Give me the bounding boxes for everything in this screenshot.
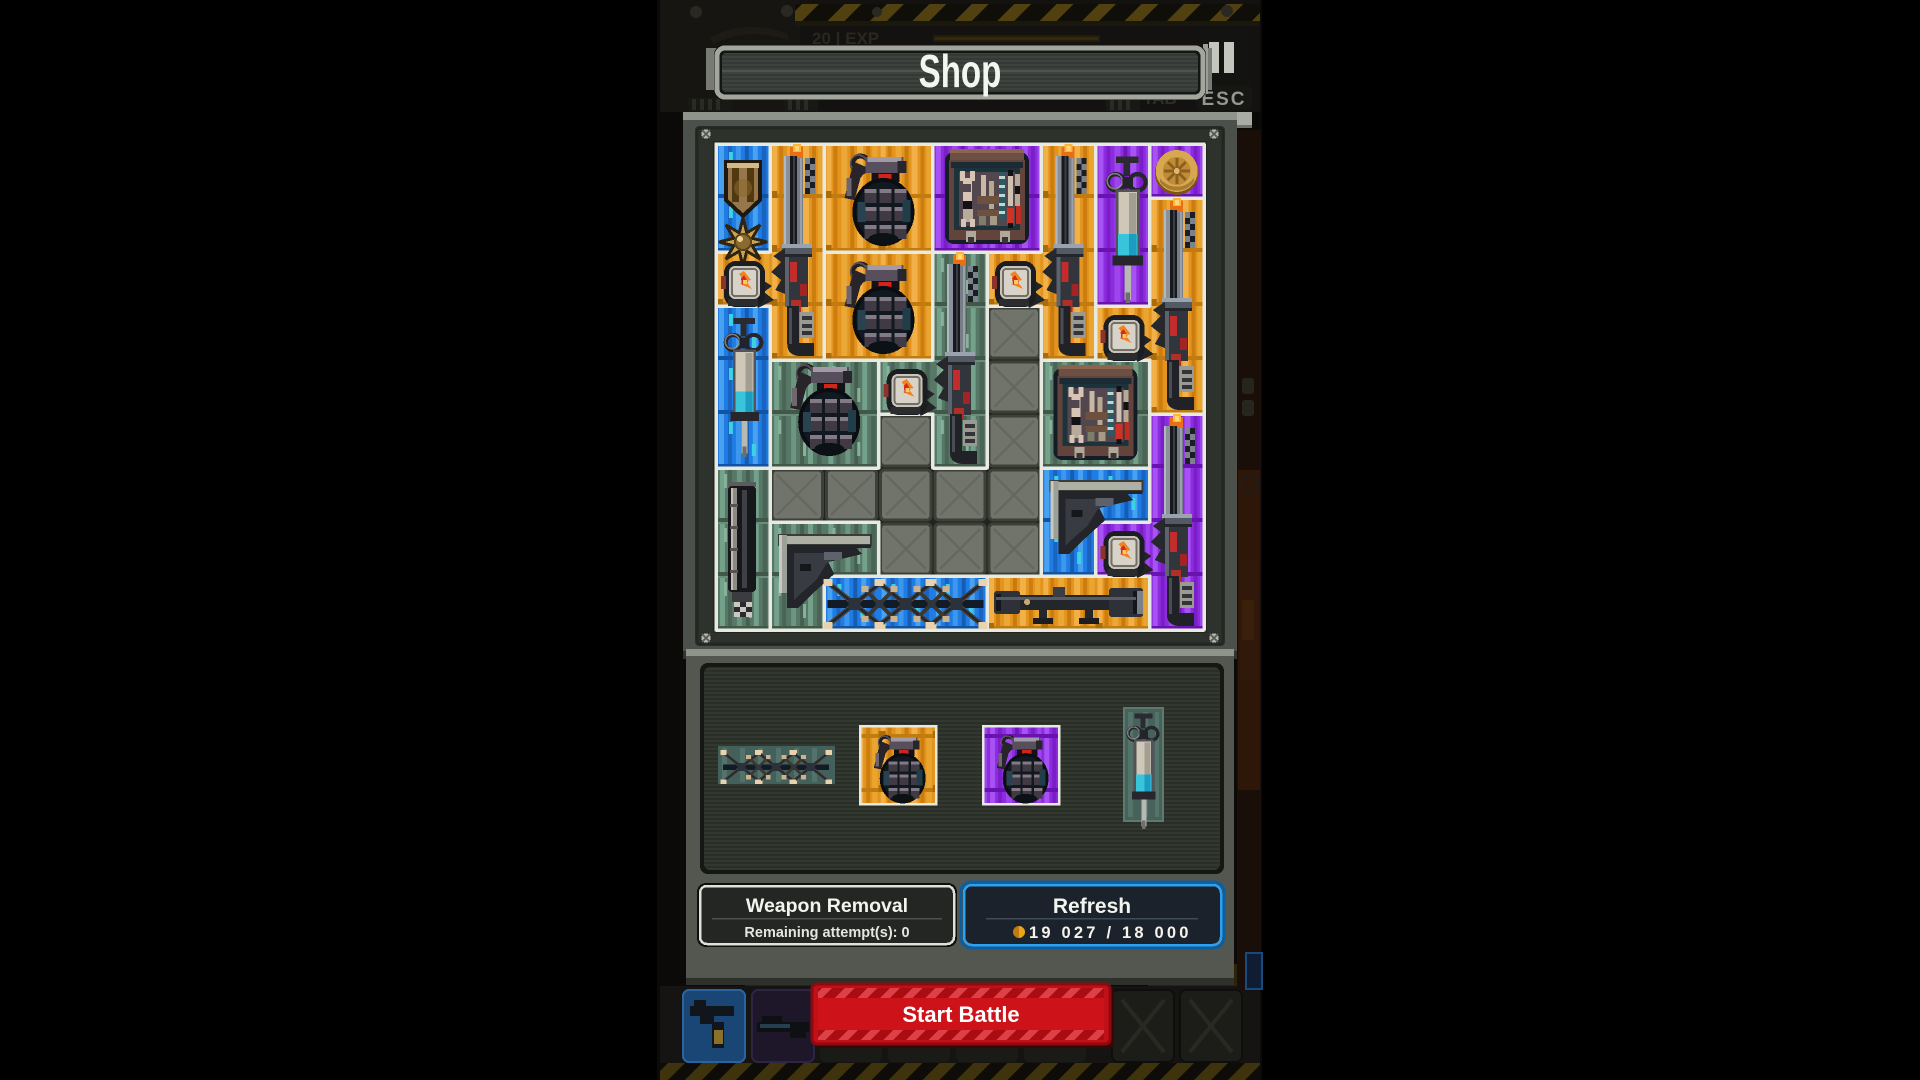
svg-text:Refresh: Refresh bbox=[1053, 895, 1131, 918]
svg-text:Remaining attempt(s): 0: Remaining attempt(s): 0 bbox=[744, 925, 909, 941]
svg-text:Weapon Removal: Weapon Removal bbox=[746, 895, 908, 917]
svg-text:Start Battle: Start Battle bbox=[902, 1002, 1019, 1027]
svg-text:ESC: ESC bbox=[1201, 89, 1246, 110]
svg-text:Shop: Shop bbox=[919, 47, 1002, 97]
svg-text:19 027 / 18 000: 19 027 / 18 000 bbox=[1029, 924, 1192, 942]
